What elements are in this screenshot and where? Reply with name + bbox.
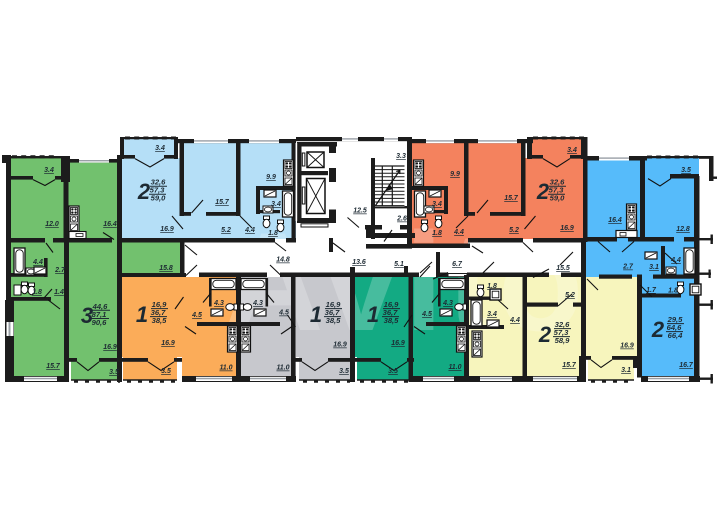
svg-text:11.0: 11.0 — [448, 364, 461, 371]
svg-text:3.1: 3.1 — [621, 367, 631, 374]
svg-text:6.7: 6.7 — [452, 261, 463, 268]
svg-text:4.4: 4.4 — [32, 259, 43, 266]
svg-text:66,4: 66,4 — [668, 331, 684, 340]
svg-text:3.5: 3.5 — [388, 368, 398, 375]
svg-text:15.5: 15.5 — [556, 265, 570, 272]
svg-text:38,5: 38,5 — [326, 316, 342, 325]
svg-text:2.7: 2.7 — [54, 267, 66, 274]
svg-text:1: 1 — [367, 302, 379, 327]
svg-text:3.4: 3.4 — [432, 201, 442, 208]
svg-text:16.9: 16.9 — [160, 226, 174, 233]
svg-text:3.4: 3.4 — [44, 167, 54, 174]
svg-text:38,5: 38,5 — [384, 316, 400, 325]
svg-text:1: 1 — [310, 302, 322, 327]
svg-text:2: 2 — [651, 317, 665, 342]
svg-text:5.1: 5.1 — [394, 261, 404, 268]
svg-text:3.1: 3.1 — [649, 264, 659, 271]
svg-text:4.4: 4.4 — [670, 257, 681, 264]
svg-text:16.9: 16.9 — [560, 225, 574, 232]
svg-text:3.4: 3.4 — [487, 311, 497, 318]
svg-text:12.0: 12.0 — [45, 221, 59, 228]
svg-text:90,6: 90,6 — [92, 318, 108, 327]
svg-text:2: 2 — [538, 322, 552, 347]
svg-text:16.9: 16.9 — [391, 340, 405, 347]
svg-text:13.6: 13.6 — [352, 259, 366, 266]
svg-text:15.7: 15.7 — [215, 199, 230, 206]
svg-text:2.6: 2.6 — [396, 216, 407, 223]
svg-text:9.9: 9.9 — [266, 174, 276, 181]
svg-text:4.5: 4.5 — [278, 310, 289, 317]
svg-text:1.8: 1.8 — [668, 288, 678, 295]
svg-text:15.7: 15.7 — [504, 195, 519, 202]
svg-text:16.9: 16.9 — [103, 344, 117, 351]
svg-text:4.3: 4.3 — [442, 300, 453, 307]
svg-text:3.5: 3.5 — [339, 368, 349, 375]
svg-text:16.4: 16.4 — [103, 221, 117, 228]
svg-text:11.0: 11.0 — [276, 365, 289, 372]
svg-text:15.7: 15.7 — [46, 363, 61, 370]
svg-text:4.3: 4.3 — [252, 300, 263, 307]
svg-text:3.5: 3.5 — [681, 167, 691, 174]
svg-text:59,0: 59,0 — [151, 194, 167, 203]
svg-text:12.8: 12.8 — [676, 226, 690, 233]
svg-text:3.4: 3.4 — [155, 145, 165, 152]
svg-text:14.8: 14.8 — [276, 257, 290, 264]
svg-text:5.2: 5.2 — [509, 227, 519, 234]
svg-text:15.7: 15.7 — [562, 362, 577, 369]
svg-text:4.4: 4.4 — [509, 317, 520, 324]
svg-text:3.4: 3.4 — [567, 147, 577, 154]
svg-text:5.2: 5.2 — [221, 227, 231, 234]
svg-text:1.8: 1.8 — [432, 230, 442, 237]
svg-text:5.2: 5.2 — [565, 292, 575, 299]
svg-text:16.9: 16.9 — [333, 342, 347, 349]
svg-text:4.4: 4.4 — [453, 229, 464, 236]
svg-text:1.4: 1.4 — [54, 289, 64, 296]
svg-text:4.5: 4.5 — [191, 312, 202, 319]
svg-text:3.3: 3.3 — [396, 153, 406, 160]
svg-text:9.9: 9.9 — [450, 171, 460, 178]
svg-text:15.8: 15.8 — [159, 265, 173, 272]
svg-text:2.7: 2.7 — [622, 264, 634, 271]
svg-text:38,5: 38,5 — [152, 316, 168, 325]
svg-text:3.4: 3.4 — [271, 201, 281, 208]
svg-text:1.8: 1.8 — [32, 289, 42, 296]
svg-text:1.7: 1.7 — [646, 287, 657, 294]
svg-text:16.9: 16.9 — [620, 343, 634, 350]
svg-text:3.5: 3.5 — [161, 368, 171, 375]
svg-text:11.0: 11.0 — [219, 365, 232, 372]
svg-text:1.8: 1.8 — [268, 230, 278, 237]
svg-text:58,9: 58,9 — [555, 336, 571, 345]
svg-text:4.4: 4.4 — [244, 227, 255, 234]
svg-text:16.9: 16.9 — [161, 340, 175, 347]
svg-text:1.8: 1.8 — [487, 283, 497, 290]
svg-text:1: 1 — [136, 302, 148, 327]
svg-text:4.5: 4.5 — [421, 311, 432, 318]
svg-text:3.5: 3.5 — [109, 369, 119, 376]
svg-text:4.3: 4.3 — [213, 300, 224, 307]
svg-text:16.7: 16.7 — [679, 362, 694, 369]
svg-text:12.5: 12.5 — [353, 208, 367, 215]
svg-text:16.4: 16.4 — [608, 217, 622, 224]
svg-text:59,0: 59,0 — [550, 194, 566, 203]
